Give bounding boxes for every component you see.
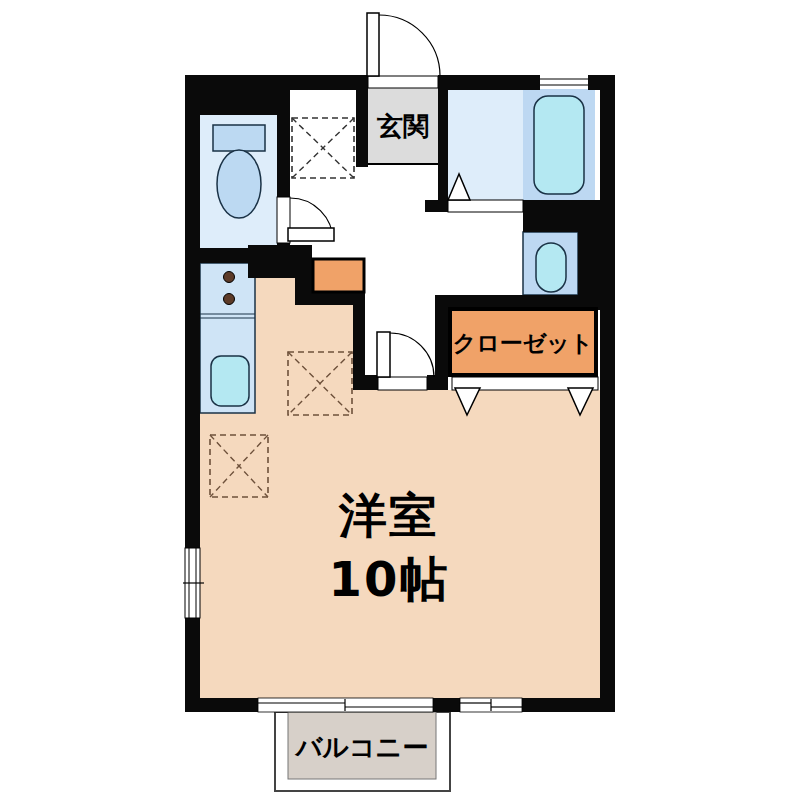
toilet-icon	[213, 125, 265, 218]
wall-dressing-corner	[425, 200, 448, 212]
window-bath-top	[540, 76, 588, 89]
wall-duct-chunk	[578, 212, 615, 310]
bathtub-icon	[534, 96, 584, 194]
wall-left-upper	[185, 75, 200, 548]
room-name-label: 洋室	[338, 487, 439, 543]
main-room-door	[377, 332, 434, 390]
wall-door-left	[353, 375, 378, 390]
window-bottom-large	[258, 698, 433, 712]
closet-label: クローゼット	[453, 330, 594, 356]
wall-bottom-b	[433, 698, 460, 712]
wall-bottom-a	[185, 698, 258, 712]
floor-plan: 玄関 クローゼット 洋室 10帖 バルコニー	[0, 0, 800, 800]
wall-right	[600, 75, 615, 712]
toilet-door	[277, 197, 334, 243]
balcony-label: バルコニー	[294, 732, 428, 762]
wall-top-right-a	[438, 75, 540, 90]
wall-toilet-right-upper	[277, 115, 290, 197]
washbasin-bowl-icon	[536, 243, 566, 292]
stove-knob-icon	[224, 272, 235, 283]
wall-genkan-right	[438, 88, 448, 212]
genkan-label: 玄関	[376, 111, 429, 141]
utility-box	[313, 259, 364, 292]
window-bottom-small	[460, 698, 522, 712]
wall-left-lower	[185, 618, 200, 712]
kitchen-sink-icon	[211, 356, 249, 406]
hall-overhead-storage-marker	[292, 118, 354, 178]
wall-bottom-c	[522, 698, 615, 712]
wall-top-mid	[290, 75, 356, 90]
wall-hall-corner	[295, 262, 312, 305]
wall-top-left-thick	[185, 75, 290, 115]
stove-knob-icon	[224, 294, 235, 305]
entrance-door	[367, 13, 440, 88]
room-size-label: 10帖	[329, 551, 450, 607]
wall-genkan-left	[356, 75, 368, 167]
